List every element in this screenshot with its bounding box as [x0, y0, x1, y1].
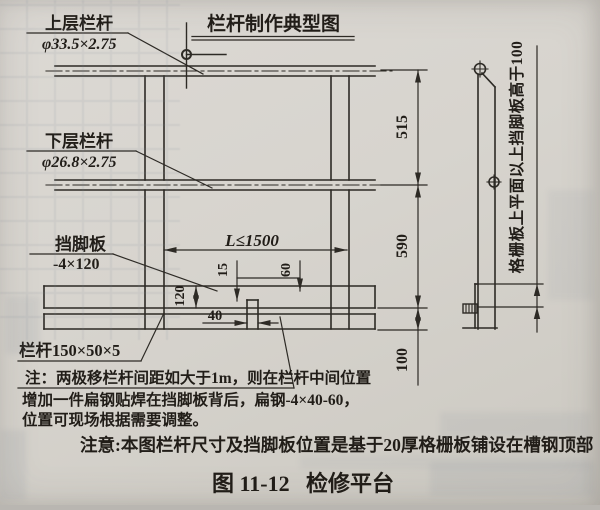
vertical-dimension-chain: 515 590 100: [378, 70, 427, 385]
toe-board-callout: 挡脚板 -4×120: [30, 234, 217, 291]
grating-note-vertical: 格栅板上平面以上挡脚板高于100: [507, 41, 526, 274]
lower-rail-pipe-section-icon: [487, 175, 501, 189]
upper-rail-spec: φ33.5×2.75: [42, 36, 116, 53]
grating-height-dimension: 格栅板上平面以上挡脚板高于100: [475, 41, 543, 332]
note-line-2: 增加一件扁钢贴焊在挡脚板背后，扁钢-4×40-60，: [22, 390, 359, 409]
toe-board-label: 挡脚板: [55, 234, 107, 254]
lower-rail: [46, 180, 392, 190]
right-post: [331, 76, 349, 329]
dim-590: 590: [394, 234, 411, 258]
left-post: [145, 76, 164, 329]
notes-block: 注：两极移栏杆间距如大于1m，则在栏杆中间位置 增加一件扁钢贴焊在挡脚板背后，扁…: [22, 368, 593, 455]
dim-40: 40: [208, 308, 223, 324]
toe-board-spec: -4×120: [53, 256, 99, 273]
note-line-3: 位置可现场根据需要调整。: [22, 410, 208, 429]
scanned-book-page: 515 590 100 L≤1500 15 60 120 40 栏杆: [0, 0, 600, 505]
post-spec: 栏杆150×50×5: [19, 340, 120, 360]
dim-515: 515: [394, 115, 411, 139]
figure-caption: 图 11-12 检修平台: [212, 471, 394, 496]
railing-drawing: 515 590 100 L≤1500 15 60 120 40 栏杆: [0, 0, 600, 505]
note-line-1: 注：两极移栏杆间距如大于1m，则在栏杆中间位置: [25, 368, 371, 387]
upper-rail-pipe-section-icon: [472, 61, 488, 77]
upper-rail-label: 上层栏杆: [45, 13, 113, 33]
upper-rail-callout: 上层栏杆 φ33.5×2.75: [27, 13, 203, 74]
caution-line: 注意:本图栏杆尺寸及挡脚板位置是基于20厚格栅板铺设在槽钢顶部: [80, 435, 593, 455]
upper-rail: [46, 66, 392, 76]
toe-board-side: [463, 284, 497, 328]
dim-60: 60: [279, 263, 294, 277]
span-dimension: L≤1500: [164, 231, 347, 250]
dim-span: L≤1500: [224, 231, 279, 250]
lower-rail-label: 下层栏杆: [45, 131, 113, 151]
flat-bar-section: [463, 304, 477, 313]
detail-title: 栏杆制作典型图: [207, 12, 340, 35]
toe-board-front: [44, 286, 375, 308]
dim-100: 100: [394, 348, 411, 372]
figure-number: 图 11-12: [212, 471, 290, 496]
front-view: [44, 66, 392, 329]
lower-rail-spec: φ26.8×2.75: [42, 154, 116, 171]
dim-120: 120: [173, 286, 188, 307]
post-callout: 栏杆150×50×5: [18, 313, 164, 361]
side-view: 格栅板上平面以上挡脚板高于100: [463, 41, 543, 332]
dim-15: 15: [216, 263, 231, 277]
figure-title: 检修平台: [306, 471, 394, 496]
